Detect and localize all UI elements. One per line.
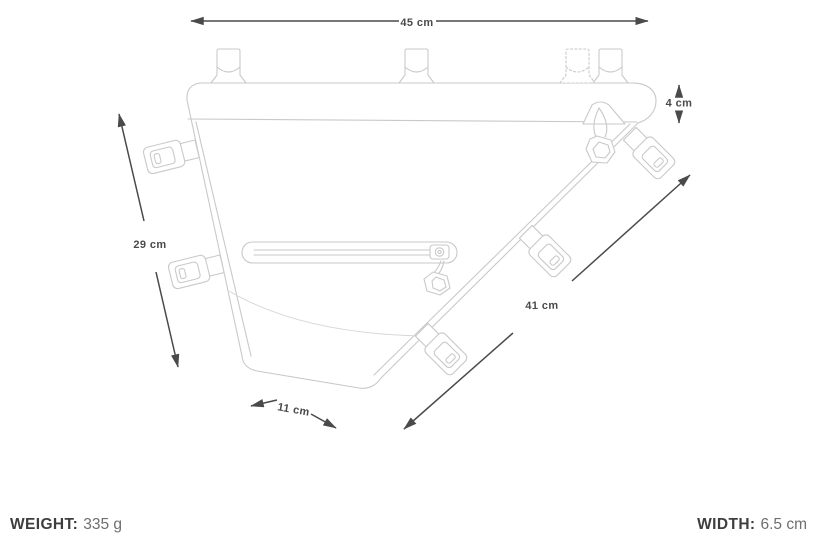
dimension-rail-height: 4 cm — [666, 85, 693, 123]
daisy-chain-tab-3 — [593, 49, 628, 83]
dimension-label-diagonal: 41 cm — [525, 300, 558, 313]
frame-bag-diagram-page: 45 cm 4 cm 29 cm 41 cm 11 cm WEIGHT:335 … — [0, 0, 820, 543]
width-value: 6.5 cm — [760, 516, 807, 533]
dimension-top-width: 45 cm — [191, 17, 648, 29]
daisy-chain-tab-ghost — [560, 49, 595, 83]
weight-label: WEIGHT: — [10, 516, 78, 533]
width-spec: WIDTH:6.5 cm — [697, 516, 807, 534]
dimension-label-bottom-width: 11 cm — [276, 401, 310, 418]
frame-bag-diagram: 45 cm 4 cm 29 cm 41 cm 11 cm — [0, 0, 820, 543]
zipper-slider — [430, 245, 449, 259]
strap-buckle-left-bottom — [167, 251, 225, 290]
width-label: WIDTH: — [697, 516, 755, 533]
dimension-label-left-height: 29 cm — [133, 239, 166, 251]
dimension-bottom-width: 11 cm — [251, 400, 336, 428]
daisy-chain-tab-2 — [399, 49, 434, 83]
weight-value: 335 g — [83, 516, 122, 533]
dimension-label-rail-height: 4 cm — [666, 98, 693, 110]
dimension-label-top-width: 45 cm — [400, 17, 433, 29]
daisy-chain-tab-1 — [211, 49, 246, 83]
weight-spec: WEIGHT:335 g — [10, 516, 122, 534]
strap-buckle-left-top — [142, 136, 200, 175]
